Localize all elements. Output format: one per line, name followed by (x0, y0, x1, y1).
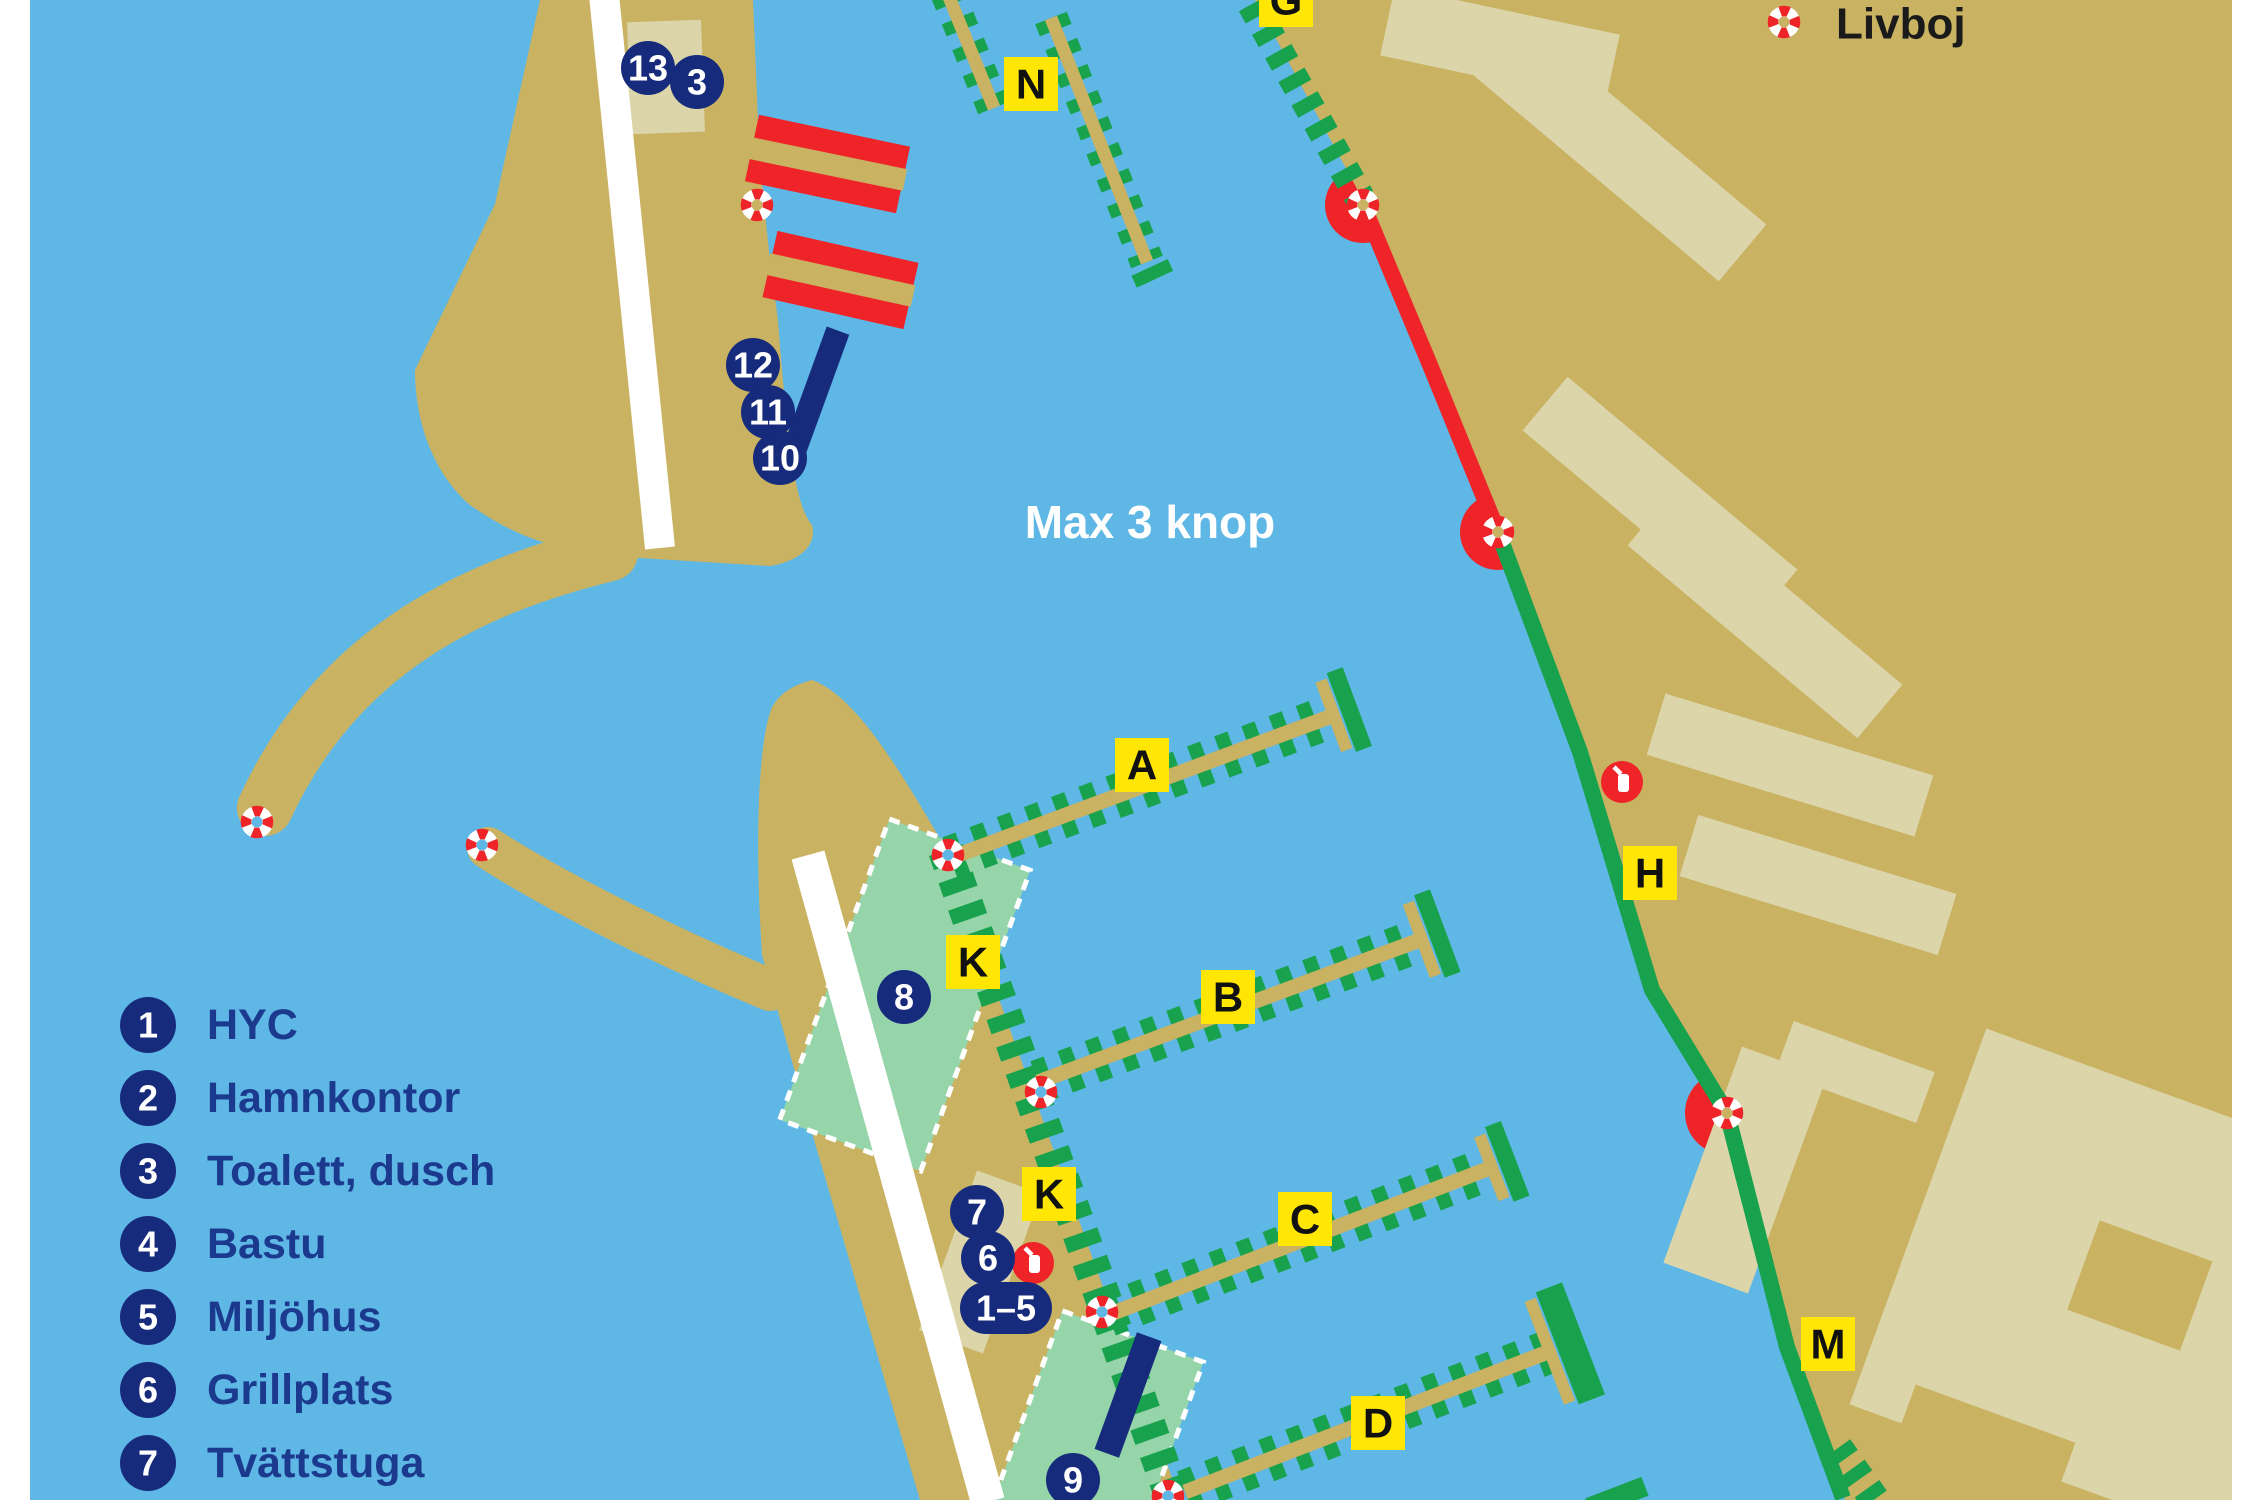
legend-item-4: 4Bastu (120, 1216, 326, 1272)
life-buoy-icon (741, 189, 773, 221)
life-buoy-icon (1711, 1097, 1743, 1129)
svg-text:B: B (1213, 974, 1243, 1021)
svg-text:7: 7 (967, 1192, 987, 1233)
livboj-label: Livboj (1836, 0, 1966, 49)
svg-text:K: K (1034, 1171, 1064, 1218)
pier-label-K1: K (946, 935, 1000, 989)
marina-map-canvas: N G A B C D K K H M 13 3 12 11 10 8 7 6 … (0, 0, 2250, 1500)
svg-text:1: 1 (138, 1005, 158, 1046)
svg-text:8: 8 (894, 977, 914, 1018)
svg-text:Bastu: Bastu (207, 1220, 326, 1268)
badge-8: 8 (877, 970, 931, 1024)
map-border-right (2232, 0, 2250, 1500)
svg-text:4: 4 (138, 1224, 158, 1265)
pier-label-C: C (1278, 1192, 1332, 1246)
svg-text:Tvättstuga: Tvättstuga (207, 1439, 426, 1487)
life-buoy-icon (932, 839, 964, 871)
svg-text:M: M (1811, 1321, 1846, 1368)
svg-text:H: H (1635, 850, 1665, 897)
svg-text:K: K (958, 939, 988, 986)
badge-3: 3 (670, 55, 724, 109)
svg-text:6: 6 (978, 1238, 998, 1279)
marina-map: N G A B C D K K H M 13 3 12 11 10 8 7 6 … (0, 0, 2250, 1500)
life-buoy-icon (1086, 1296, 1118, 1328)
badge-13: 13 (621, 41, 675, 95)
svg-text:A: A (1127, 742, 1157, 789)
life-buoy-icon (1025, 1076, 1057, 1108)
svg-text:N: N (1016, 61, 1046, 108)
svg-text:3: 3 (138, 1151, 158, 1192)
svg-text:13: 13 (628, 48, 668, 89)
svg-text:G: G (1270, 0, 1303, 24)
pier-label-N: N (1004, 57, 1058, 111)
svg-text:6: 6 (138, 1370, 158, 1411)
life-buoy-icon (1768, 6, 1800, 38)
svg-text:Hamnkontor: Hamnkontor (207, 1074, 461, 1122)
life-buoy-icon (1482, 516, 1514, 548)
svg-text:12: 12 (733, 345, 773, 386)
svg-text:9: 9 (1063, 1460, 1083, 1500)
pier-label-D: D (1351, 1396, 1405, 1450)
pier-label-K2: K (1022, 1167, 1076, 1221)
badge-12: 12 (726, 338, 780, 392)
fire-extinguisher-icon (1601, 761, 1643, 803)
svg-text:3: 3 (687, 62, 707, 103)
life-buoy-icon (466, 829, 498, 861)
svg-text:Grillplats: Grillplats (207, 1366, 393, 1414)
svg-text:2: 2 (138, 1078, 158, 1119)
badge-10: 10 (753, 431, 807, 485)
legend-item-6: 6Grillplats (120, 1362, 393, 1418)
svg-text:5: 5 (138, 1297, 158, 1338)
pier-label-H: H (1623, 846, 1677, 900)
badge-6: 6 (961, 1231, 1015, 1285)
svg-text:D: D (1363, 1400, 1393, 1447)
badge-1-5: 1–5 (960, 1282, 1052, 1334)
svg-text:Miljöhus: Miljöhus (207, 1293, 381, 1341)
svg-text:7: 7 (138, 1443, 158, 1484)
svg-text:Toalett, dusch: Toalett, dusch (207, 1147, 495, 1195)
svg-text:11: 11 (749, 392, 787, 433)
map-border-left (0, 0, 30, 1500)
life-buoy-icon (241, 806, 273, 838)
svg-text:C: C (1290, 1196, 1320, 1243)
life-buoy-icon (1347, 189, 1379, 221)
svg-text:HYC: HYC (207, 1001, 298, 1049)
fire-extinguisher-icon (1012, 1242, 1054, 1284)
legend-item-5: 5Miljöhus (120, 1289, 381, 1345)
badge-7: 7 (950, 1185, 1004, 1239)
svg-text:1–5: 1–5 (976, 1288, 1036, 1329)
svg-text:10: 10 (760, 438, 800, 479)
pier-label-B: B (1201, 970, 1255, 1024)
pier-label-M: M (1801, 1317, 1855, 1371)
pier-label-G: G (1259, 0, 1313, 27)
legend-item-7: 7Tvättstuga (120, 1435, 426, 1491)
badge-11: 11 (741, 385, 795, 439)
speed-note: Max 3 knop (1025, 496, 1276, 548)
legend-item-1: 1HYC (120, 997, 298, 1053)
pier-label-A: A (1115, 738, 1169, 792)
